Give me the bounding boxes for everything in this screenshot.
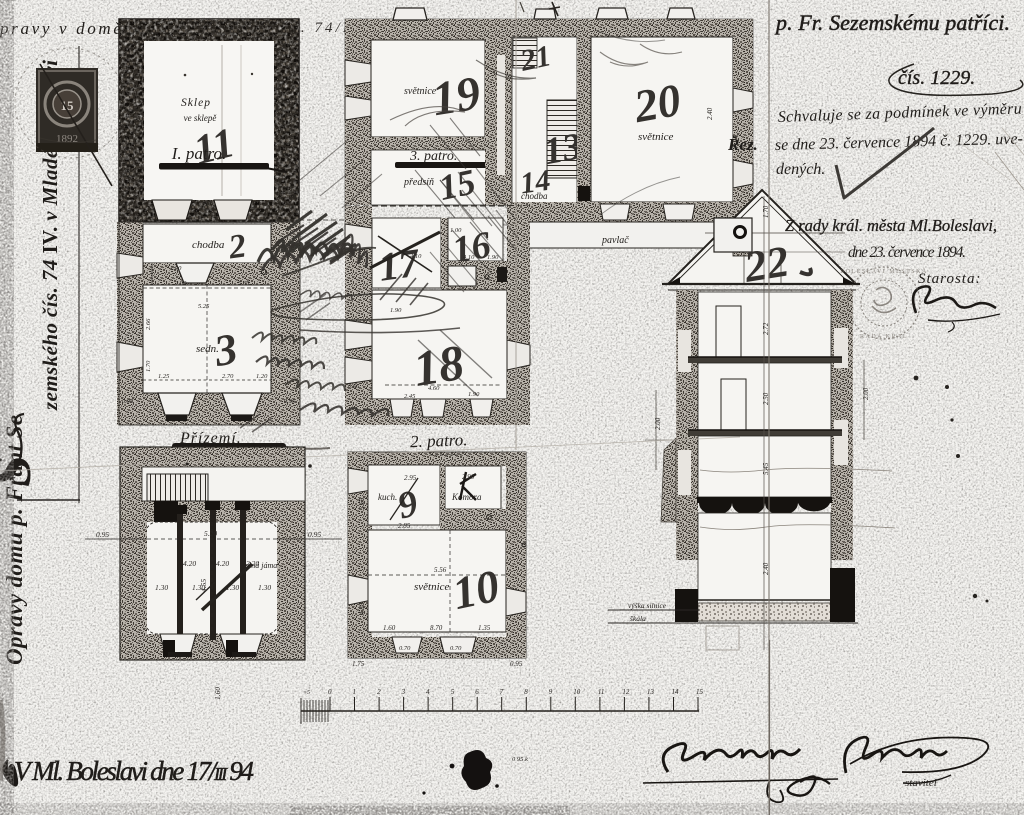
svg-text:11: 11 (598, 688, 604, 696)
svg-text:1.75: 1.75 (352, 660, 365, 668)
svg-text:dne 23. července 1894.: dne 23. července 1894. (848, 244, 966, 261)
svg-text:2.00: 2.00 (654, 417, 662, 430)
svg-text:chodba: chodba (192, 239, 225, 251)
svg-text:5.56: 5.56 (434, 566, 447, 574)
svg-text:1.20: 1.20 (256, 373, 268, 380)
svg-text:3: 3 (401, 688, 406, 696)
svg-text:20: 20 (629, 74, 684, 132)
svg-text:19: 19 (428, 66, 484, 126)
svg-text:1.60: 1.60 (383, 624, 396, 632)
svg-text:15: 15 (696, 688, 704, 696)
svg-text:7: 7 (500, 688, 504, 696)
svg-text:1.35: 1.35 (478, 624, 491, 632)
svg-text:1.30: 1.30 (258, 583, 271, 592)
svg-text:4.20: 4.20 (216, 559, 229, 568)
svg-text:12: 12 (622, 688, 630, 696)
svg-text:2.85: 2.85 (398, 522, 411, 530)
svg-text:1: 1 (353, 688, 357, 696)
svg-text:I. patro.: I. patro. (171, 144, 227, 163)
svg-text:2. patro.: 2. patro. (410, 430, 468, 451)
svg-text:4.10: 4.10 (463, 254, 475, 261)
svg-text:p. Fr. Sezemskému patříci.: p. Fr. Sezemskému patříci. (774, 10, 1010, 35)
svg-text:=5: =5 (303, 690, 310, 696)
svg-text:2.66: 2.66 (145, 318, 152, 330)
svg-text:výška silnice: výška silnice (628, 601, 667, 610)
svg-text:chodba: chodba (521, 191, 548, 201)
svg-text:Komora: Komora (451, 492, 482, 502)
svg-text:RADA KRAL: RADA KRAL (860, 334, 908, 340)
svg-text:předsíň: předsíň (403, 177, 434, 188)
svg-text:Sklep: Sklep (181, 97, 211, 109)
svg-text:5.20: 5.20 (204, 529, 217, 538)
svg-text:1.30: 1.30 (155, 583, 168, 592)
svg-text:1.90: 1.90 (390, 307, 402, 314)
svg-text:14: 14 (672, 688, 680, 696)
svg-text:0.95: 0.95 (308, 530, 321, 539)
svg-text:1.70: 1.70 (145, 360, 152, 372)
svg-text:3. patro.: 3. patro. (409, 149, 457, 164)
svg-text:6: 6 (475, 688, 479, 696)
svg-text:4.85: 4.85 (358, 602, 366, 615)
svg-text:2.00: 2.00 (862, 387, 870, 400)
svg-text:2.70: 2.70 (222, 373, 234, 380)
svg-text:ve sklepě: ve sklepě (184, 113, 218, 123)
svg-text:9: 9 (549, 688, 553, 696)
svg-text:1.60: 1.60 (213, 687, 222, 700)
svg-text:0.95: 0.95 (510, 660, 523, 668)
svg-text:2.40: 2.40 (706, 107, 714, 120)
svg-text:stavitel: stavitel (905, 777, 937, 789)
svg-text:10: 10 (573, 688, 581, 696)
svg-text:1.25: 1.25 (158, 373, 170, 380)
svg-text:4.10: 4.10 (410, 253, 422, 260)
svg-text:0 95 k: 0 95 k (512, 756, 528, 763)
svg-text:světnice: světnice (414, 581, 450, 593)
svg-text:2.00: 2.00 (175, 280, 187, 287)
svg-text:0.70: 0.70 (399, 645, 411, 652)
svg-text:1.00: 1.00 (170, 265, 182, 272)
svg-text:2: 2 (377, 688, 381, 696)
svg-text:5.35: 5.35 (238, 280, 250, 287)
svg-text:čís. 1229.: čís. 1229. (898, 67, 975, 89)
svg-text:2.90: 2.90 (462, 473, 475, 481)
svg-text:0.95: 0.95 (122, 398, 134, 405)
svg-text:0: 0 (328, 688, 332, 696)
svg-text:5: 5 (451, 688, 455, 696)
svg-text:4.60: 4.60 (428, 385, 440, 392)
svg-text:dených.: dených. (776, 161, 825, 178)
svg-text:BOLESLAVI MESTSKA: BOLESLAVI MESTSKA (840, 269, 928, 275)
svg-text:0.70: 0.70 (450, 645, 462, 652)
svg-text:5.25: 5.25 (198, 303, 210, 310)
svg-text:5.65: 5.65 (358, 497, 366, 510)
svg-text:0.95: 0.95 (284, 398, 296, 405)
svg-text:4: 4 (426, 688, 430, 696)
svg-text:8: 8 (524, 688, 528, 696)
svg-text:Řez.: Řez. (727, 135, 758, 154)
svg-text:světnice: světnice (638, 131, 674, 143)
svg-text:Z rady král. města Ml.Boleslav: Z rady král. města Ml.Boleslavi, (785, 216, 997, 235)
svg-text:4.20: 4.20 (183, 559, 196, 568)
svg-text:0.65: 0.65 (348, 383, 360, 390)
svg-text:pavlač: pavlač (601, 235, 629, 246)
svg-text:13: 13 (647, 688, 655, 696)
svg-text:8.70: 8.70 (430, 624, 443, 632)
svg-text:2.95: 2.95 (404, 474, 417, 482)
svg-text:0.95: 0.95 (96, 530, 109, 539)
svg-text:škála: škála (630, 614, 646, 623)
